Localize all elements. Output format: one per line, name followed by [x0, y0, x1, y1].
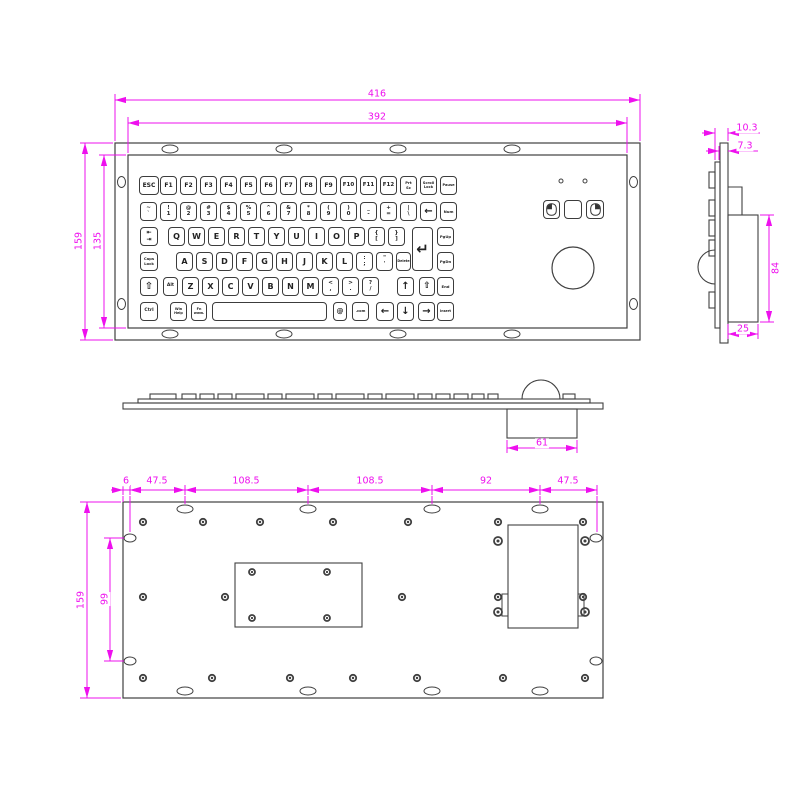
key-backquote: ~` [140, 202, 157, 221]
key-f11: F11 [360, 176, 377, 195]
dim-back-hole-span: 99 [100, 592, 110, 606]
key-k: K [316, 252, 333, 271]
key-arrow-left: ← [376, 302, 394, 321]
dim-back-3: 108.5 [231, 476, 260, 486]
key-5: %5 [240, 202, 257, 221]
key-alt: Alt [163, 277, 178, 296]
key-v: V [242, 277, 259, 296]
key-bracket-right: }] [388, 227, 405, 246]
key-win-help: WinHelp [170, 302, 187, 321]
key-3: #3 [200, 202, 217, 221]
dim-side-total-depth: 10.3 [735, 123, 758, 133]
key-n: N [282, 277, 299, 296]
key-6: ^6 [260, 202, 277, 221]
key-pause: Pause [440, 176, 457, 195]
key-e: E [208, 227, 225, 246]
key-esc: ESC [139, 176, 159, 195]
key-dot-com: .com [352, 302, 369, 321]
key-backspace: ← [420, 202, 437, 221]
key-end: End [437, 277, 454, 296]
key-shift-left: ⇧ [140, 277, 158, 296]
key-period: >. [342, 277, 359, 296]
key-l: L [336, 252, 353, 271]
dim-side-box-depth: 25 [736, 324, 750, 334]
mouse-right-icon [586, 200, 604, 219]
key-f9: F9 [320, 176, 337, 195]
key-enter: ↵ [412, 227, 433, 271]
key-prt-sc: PrtSc [400, 176, 417, 195]
key-delete: Delete [396, 252, 411, 271]
key-ctrl: Ctrl [140, 302, 158, 321]
key-equals: += [380, 202, 397, 221]
dim-side-box-height: 84 [771, 261, 781, 275]
key-insert: Insert [437, 302, 454, 321]
dim-back-4: 108.5 [355, 476, 384, 486]
key-at: @ [333, 302, 347, 321]
key-i: I [308, 227, 325, 246]
key-2: @2 [180, 202, 197, 221]
key-backslash: |\ [400, 202, 417, 221]
key-quote: "' [376, 252, 393, 271]
key-x: X [202, 277, 219, 296]
dim-side-key-depth: 7.3 [736, 141, 753, 151]
key-arrow-down: ↓ [397, 302, 414, 321]
key-m: M [302, 277, 319, 296]
key-r: R [228, 227, 245, 246]
key-f1: F1 [160, 176, 177, 195]
key-f3: F3 [200, 176, 217, 195]
key-comma: <, [322, 277, 339, 296]
key-bracket-left: {[ [368, 227, 385, 246]
key-y: Y [268, 227, 285, 246]
key-q: Q [168, 227, 185, 246]
key-p: P [348, 227, 365, 246]
key-scroll-lock: ScrollLock [420, 176, 437, 195]
key-f6: F6 [260, 176, 277, 195]
key-t: T [248, 227, 265, 246]
key-pgup: PgUp [437, 227, 454, 246]
key-minus: _- [360, 202, 377, 221]
front-view-keys: ESCF1F2F3F4F5F6F7F8F9F10F11F12PrtScScrol… [0, 0, 800, 800]
key-num: Num [440, 202, 457, 221]
key-slash: ?/ [362, 277, 379, 296]
key-8: *8 [300, 202, 317, 221]
key-f8: F8 [300, 176, 317, 195]
key-g: G [256, 252, 273, 271]
key-semicolon: :; [356, 252, 373, 271]
key-d: D [216, 252, 233, 271]
key-shift-right: ⇧ [419, 277, 435, 296]
key-b: B [262, 277, 279, 296]
key-z: Z [182, 277, 199, 296]
key-u: U [288, 227, 305, 246]
dim-front-outer-width: 416 [367, 89, 387, 99]
key-f12: F12 [380, 176, 397, 195]
key-j: J [296, 252, 313, 271]
key-f: F [236, 252, 253, 271]
key-1: !1 [160, 202, 177, 221]
key-9: (9 [320, 202, 337, 221]
dim-back-1: 6 [122, 476, 130, 486]
key-a: A [176, 252, 193, 271]
dim-profile-box-width: 61 [535, 438, 549, 448]
key-mouse-middle-button [564, 200, 582, 219]
technical-drawing: ESCF1F2F3F4F5F6F7F8F9F10F11F12PrtScScrol… [0, 0, 800, 800]
key-0: )0 [340, 202, 357, 221]
dim-front-outer-height: 159 [74, 231, 84, 251]
key-s: S [196, 252, 213, 271]
key-f10: F10 [340, 176, 357, 195]
dim-back-2: 47.5 [145, 476, 168, 486]
key-tab: ⇤⇥ [140, 227, 158, 246]
key-f4: F4 [220, 176, 237, 195]
key-h: H [276, 252, 293, 271]
key-space [212, 302, 327, 321]
key-f7: F7 [280, 176, 297, 195]
key-f5: F5 [240, 176, 257, 195]
key-o: O [328, 227, 345, 246]
dim-front-inner-height: 135 [93, 231, 103, 251]
dim-back-height: 159 [76, 590, 86, 610]
key-f2: F2 [180, 176, 197, 195]
key-w: W [188, 227, 205, 246]
key-7: &7 [280, 202, 297, 221]
key-arrow-right: → [418, 302, 435, 321]
dim-front-inner-width: 392 [367, 112, 387, 122]
key-fn-www: Fnwww. [191, 302, 207, 321]
mouse-left-icon [543, 200, 560, 219]
key-pgdn: PgDn [437, 252, 454, 271]
key-arrow-up: ↑ [397, 277, 414, 296]
dim-back-5: 92 [479, 476, 493, 486]
key-caps-lock: CapsLock [140, 252, 158, 271]
dim-back-6: 47.5 [556, 476, 579, 486]
key-4: $4 [220, 202, 237, 221]
key-c: C [222, 277, 239, 296]
